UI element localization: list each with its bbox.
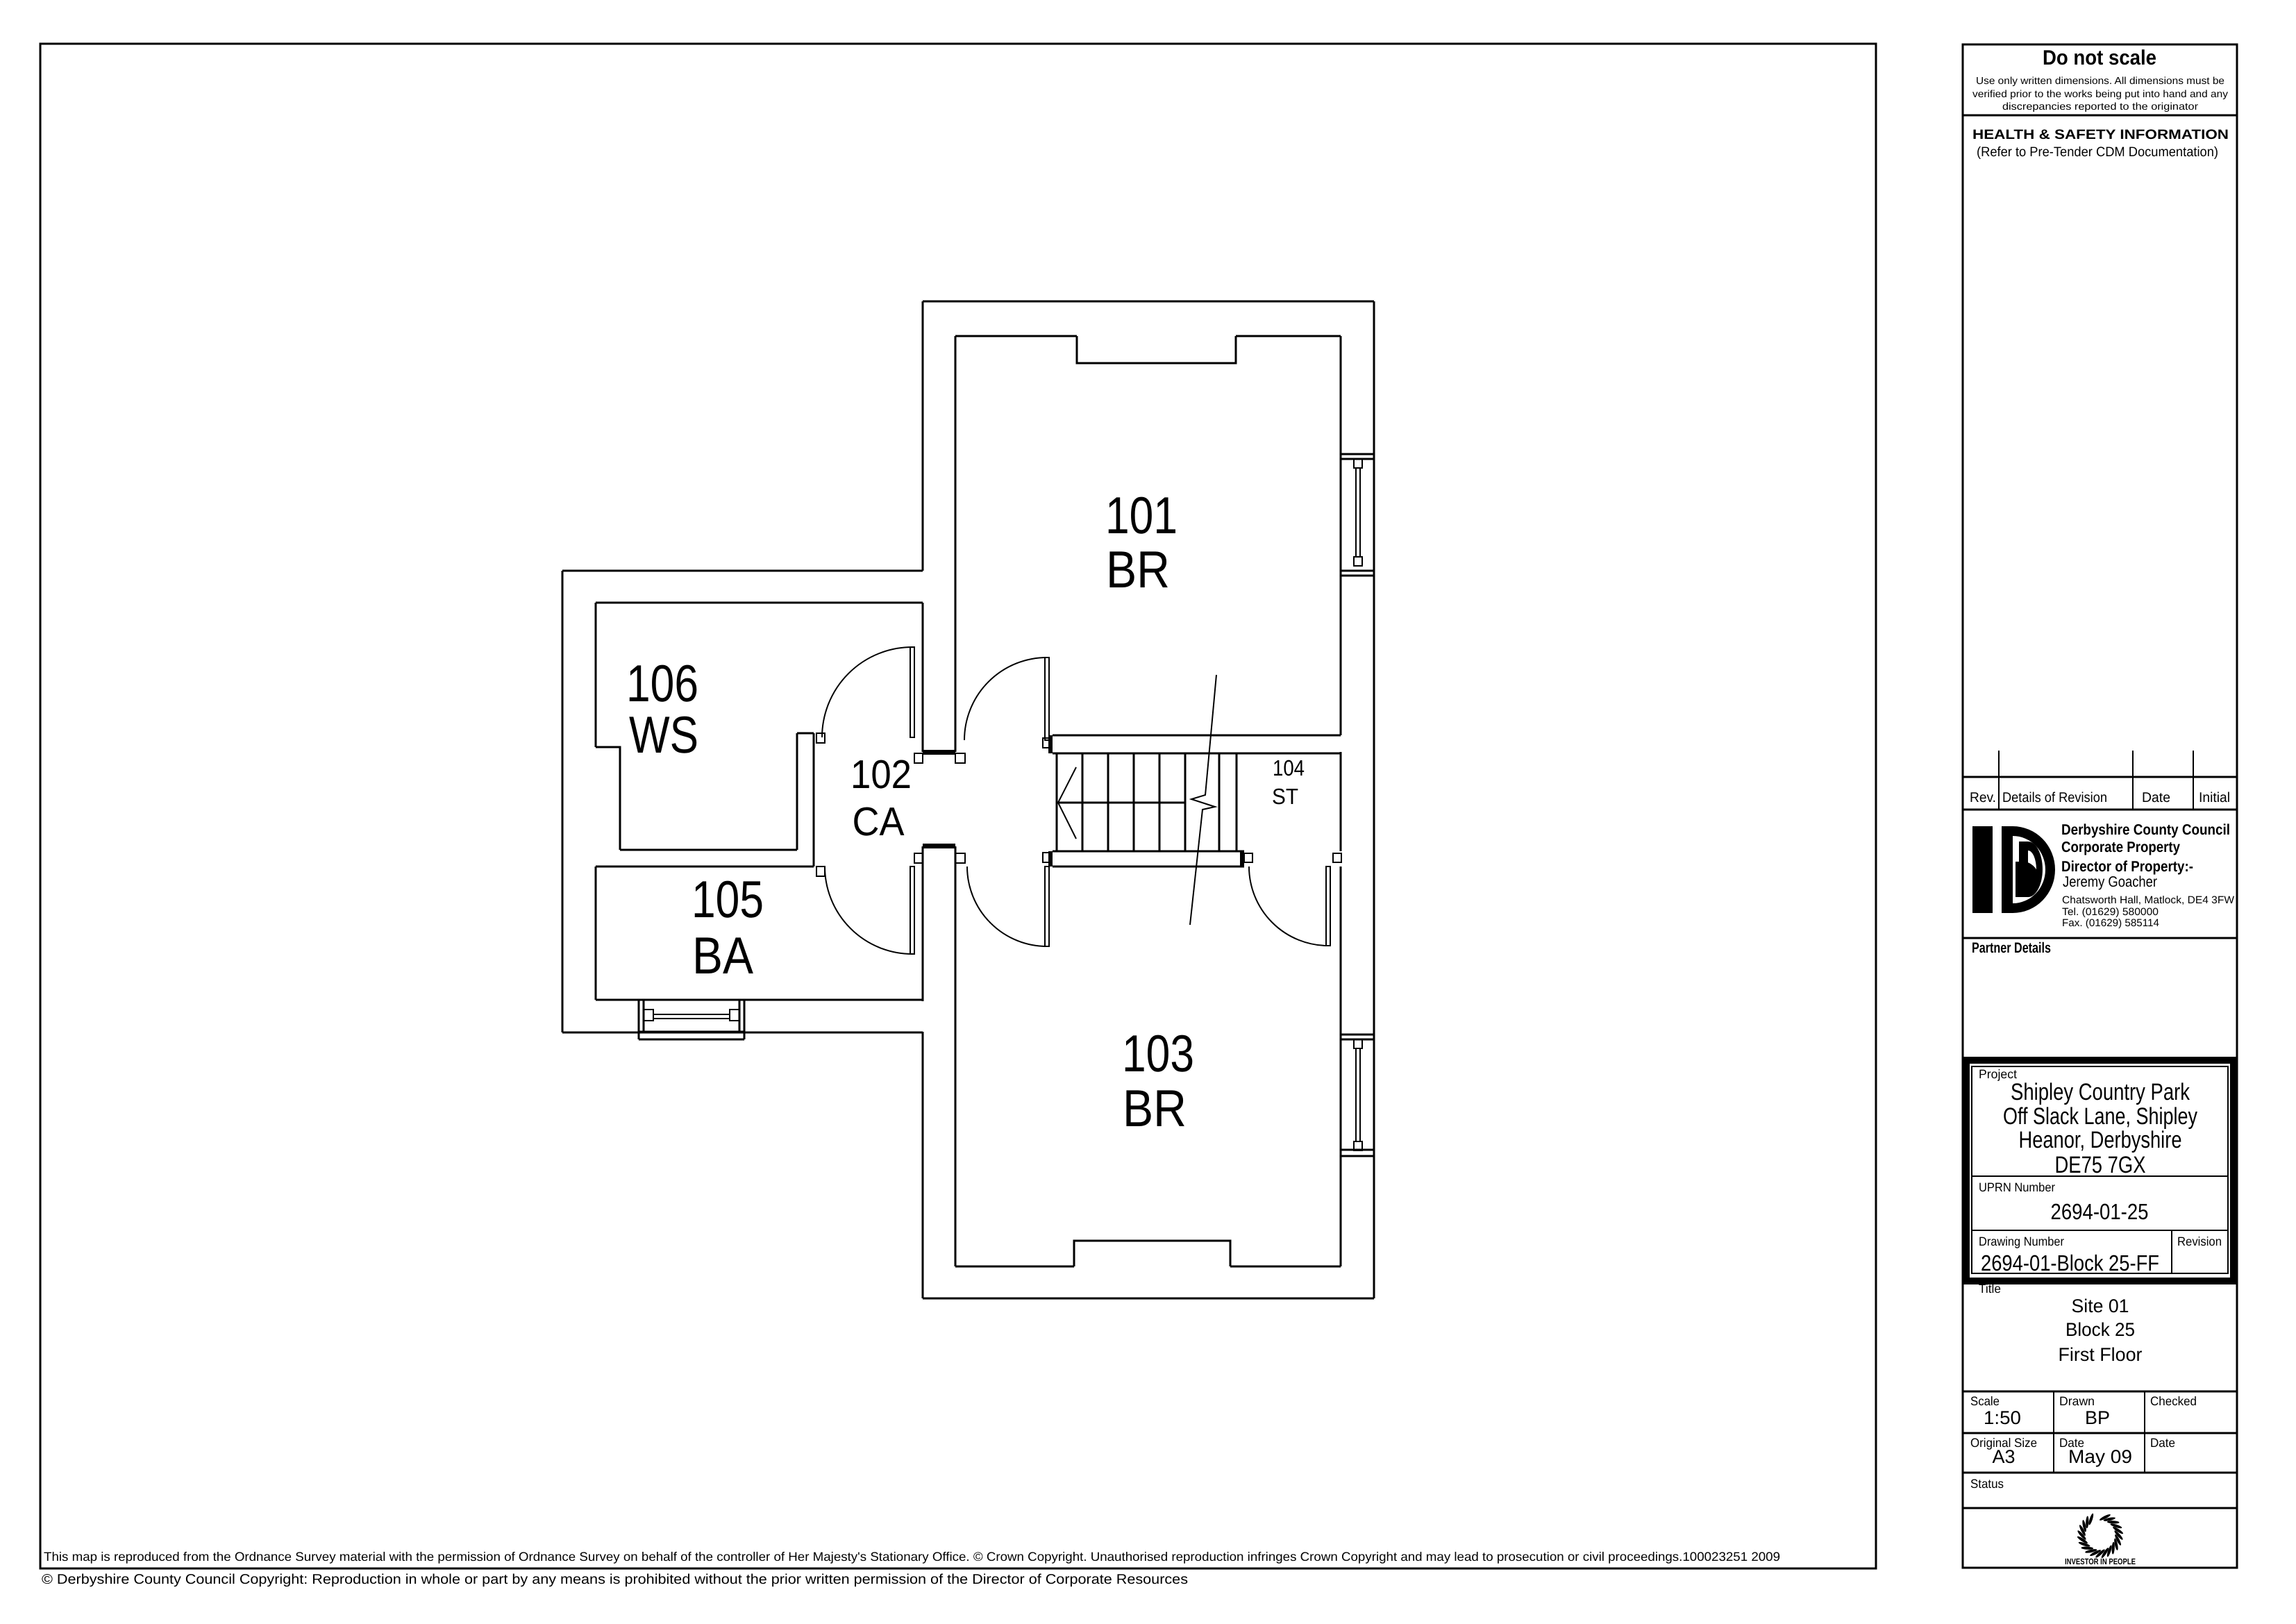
svg-text:INVESTOR IN PEOPLE: INVESTOR IN PEOPLE (2065, 1557, 2136, 1566)
svg-text:106: 106 (626, 654, 698, 712)
svg-text:Rev.: Rev. (1970, 790, 1996, 805)
svg-text:1:50: 1:50 (1984, 1407, 2021, 1428)
svg-text:Initial: Initial (2199, 790, 2230, 805)
svg-text:CA: CA (853, 799, 905, 844)
svg-text:BR: BR (1123, 1079, 1187, 1137)
svg-text:Date: Date (2150, 1436, 2175, 1450)
svg-text:(Refer to Pre-Tender CDM Docum: (Refer to Pre-Tender CDM Documentation) (1977, 144, 2218, 160)
svg-text:Partner Details: Partner Details (1972, 940, 2051, 956)
svg-text:2694-01-25: 2694-01-25 (2051, 1199, 2149, 1224)
svg-text:A3: A3 (1993, 1446, 2016, 1467)
svg-text:Jeremy Goacher: Jeremy Goacher (2063, 873, 2157, 890)
svg-text:May 09: May 09 (2068, 1446, 2132, 1467)
svg-text:Status: Status (1970, 1477, 2004, 1491)
svg-text:102: 102 (850, 752, 912, 797)
svg-text:Scale: Scale (1970, 1394, 2000, 1408)
svg-text:Site 01: Site 01 (2072, 1296, 2129, 1316)
svg-text:Shipley Country Park: Shipley Country Park (2011, 1079, 2190, 1105)
svg-text:Details of Revision: Details of Revision (2002, 790, 2107, 805)
svg-text:Heanor, Derbyshire: Heanor, Derbyshire (2019, 1127, 2182, 1153)
svg-text:2694-01-Block 25-FF: 2694-01-Block 25-FF (1981, 1250, 2159, 1275)
svg-text:UPRN Number: UPRN Number (1979, 1180, 2055, 1194)
svg-text:BP: BP (2085, 1407, 2110, 1428)
svg-text:verified prior to the works be: verified prior to the works being put in… (1972, 89, 2229, 100)
svg-text:101: 101 (1105, 486, 1178, 544)
svg-text:Derbyshire County Council: Derbyshire County Council (2061, 821, 2230, 838)
svg-text:Tel. (01629) 580000: Tel. (01629) 580000 (2062, 906, 2159, 918)
svg-text:DE75 7GX: DE75 7GX (2055, 1152, 2146, 1178)
svg-text:Checked: Checked (2150, 1394, 2197, 1408)
svg-text:Fax. (01629) 585114: Fax. (01629) 585114 (2062, 917, 2159, 929)
svg-text:BR: BR (1106, 540, 1170, 598)
svg-text:Drawn: Drawn (2059, 1394, 2095, 1408)
svg-text:discrepancies reported to the: discrepancies reported to the originator (2002, 101, 2198, 112)
svg-text:BA: BA (692, 926, 753, 985)
svg-text:103: 103 (1122, 1024, 1194, 1082)
svg-text:Use only written dimensions.: Use only written dimensions. All dimensi… (1976, 76, 2224, 87)
svg-text:ST: ST (1272, 784, 1298, 809)
svg-text:Chatsworth Hall, Matlock, DE4: Chatsworth Hall, Matlock, DE4 3FW (2062, 894, 2235, 906)
svg-text:Drawing Number: Drawing Number (1979, 1234, 2064, 1248)
svg-text:© Derbyshire County Council Co: © Derbyshire County Council Copyright: R… (42, 1572, 1188, 1587)
svg-text:Do not scale: Do not scale (2043, 47, 2156, 69)
svg-text:WS: WS (629, 705, 698, 764)
svg-text:Corporate Property: Corporate Property (2061, 839, 2180, 855)
svg-text:Block 25: Block 25 (2065, 1319, 2135, 1340)
svg-text:Title: Title (1979, 1282, 2001, 1296)
svg-text:Director of Property:-: Director of Property:- (2061, 858, 2193, 875)
svg-text:HEALTH & SAFETY INFORMATION: HEALTH & SAFETY INFORMATION (1972, 127, 2229, 142)
svg-text:Off Slack Lane, Shipley: Off Slack Lane, Shipley (2003, 1103, 2197, 1130)
svg-text:104: 104 (1273, 755, 1305, 780)
svg-text:105: 105 (692, 870, 764, 928)
svg-text:Revision: Revision (2177, 1234, 2222, 1248)
svg-text:Date: Date (2142, 790, 2170, 805)
svg-text:First Floor: First Floor (2059, 1344, 2143, 1365)
svg-text:This map is reproduced from th: This map is reproduced from the Ordnance… (44, 1550, 1780, 1564)
